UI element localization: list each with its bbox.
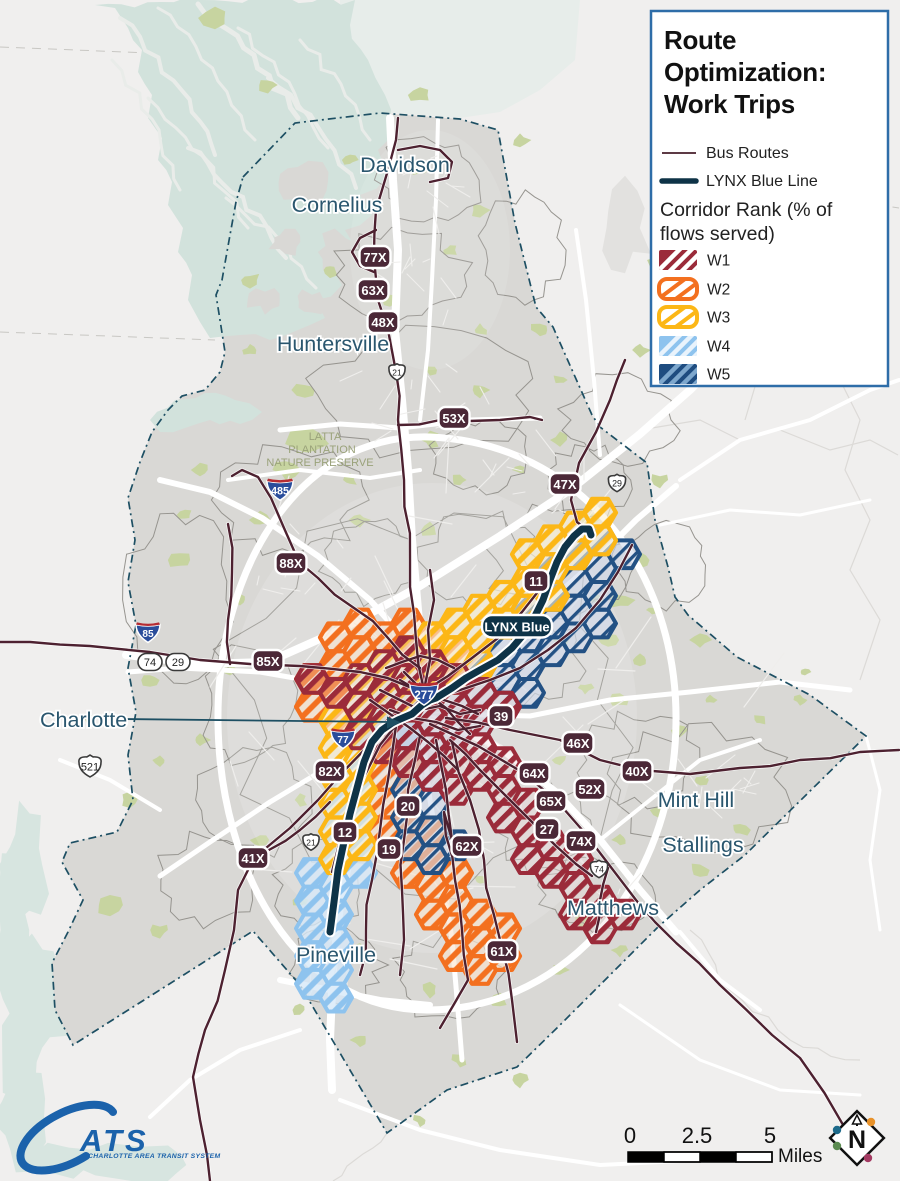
svg-text:62X: 62X <box>455 839 478 854</box>
svg-text:2.5: 2.5 <box>682 1123 713 1148</box>
svg-text:277: 277 <box>414 690 433 702</box>
svg-text:PLANTATION: PLANTATION <box>288 444 355 456</box>
svg-text:85: 85 <box>142 629 154 640</box>
svg-text:Huntersville: Huntersville <box>277 332 389 356</box>
svg-text:W2: W2 <box>707 282 730 299</box>
svg-text:21: 21 <box>392 367 402 377</box>
svg-text:82X: 82X <box>318 764 341 779</box>
svg-text:46X: 46X <box>566 736 589 751</box>
svg-text:20: 20 <box>401 799 415 814</box>
svg-text:53X: 53X <box>442 411 465 426</box>
svg-text:40X: 40X <box>625 764 648 779</box>
svg-text:485: 485 <box>271 485 289 497</box>
svg-text:W1: W1 <box>707 253 730 270</box>
svg-text:Charlotte: Charlotte <box>40 708 127 732</box>
svg-text:88X: 88X <box>279 556 302 571</box>
svg-text:11: 11 <box>529 574 543 589</box>
svg-text:29: 29 <box>612 478 622 488</box>
svg-text:Miles: Miles <box>778 1146 822 1167</box>
svg-text:63X: 63X <box>361 283 384 298</box>
svg-text:74X: 74X <box>569 834 592 849</box>
svg-text:77X: 77X <box>363 250 386 265</box>
svg-text:Matthews: Matthews <box>567 896 659 920</box>
svg-text:N: N <box>848 1126 866 1154</box>
svg-text:85X: 85X <box>256 654 279 669</box>
svg-text:12: 12 <box>338 825 352 840</box>
svg-text:Davidson: Davidson <box>360 153 450 177</box>
svg-text:21: 21 <box>306 837 316 847</box>
svg-text:Cornelius: Cornelius <box>292 193 383 217</box>
svg-text:52X: 52X <box>578 782 601 797</box>
svg-text:Optimization:: Optimization: <box>664 57 826 87</box>
svg-text:LYNX Blue: LYNX Blue <box>484 620 549 635</box>
svg-text:19: 19 <box>382 842 396 857</box>
svg-text:NATURE PRESERVE: NATURE PRESERVE <box>266 457 373 469</box>
svg-text:65X: 65X <box>539 794 562 809</box>
svg-text:47X: 47X <box>553 477 576 492</box>
svg-text:W4: W4 <box>707 339 731 356</box>
svg-text:flows served): flows served) <box>660 223 775 245</box>
svg-text:CHARLOTTE AREA TRANSIT SYSTEM: CHARLOTTE AREA TRANSIT SYSTEM <box>88 1153 220 1160</box>
svg-text:Stallings: Stallings <box>662 833 743 857</box>
svg-text:29: 29 <box>172 657 184 669</box>
svg-text:5: 5 <box>764 1123 776 1148</box>
svg-text:W5: W5 <box>707 367 730 384</box>
svg-text:0: 0 <box>624 1123 636 1148</box>
svg-text:LYNX Blue Line: LYNX Blue Line <box>706 173 818 190</box>
svg-text:39: 39 <box>494 709 508 724</box>
svg-text:Corridor Rank (% of: Corridor Rank (% of <box>660 199 833 221</box>
svg-text:521: 521 <box>81 761 99 773</box>
svg-text:77: 77 <box>337 735 349 746</box>
svg-text:Work Trips: Work Trips <box>664 89 795 119</box>
svg-text:41X: 41X <box>241 851 264 866</box>
svg-text:Pineville: Pineville <box>296 943 376 967</box>
svg-text:LATTA: LATTA <box>309 431 342 443</box>
svg-text:Route: Route <box>664 25 736 55</box>
svg-text:Bus Routes: Bus Routes <box>706 145 789 162</box>
svg-text:W3: W3 <box>707 310 730 327</box>
svg-text:27: 27 <box>540 822 554 837</box>
svg-text:74: 74 <box>144 657 156 669</box>
svg-text:64X: 64X <box>522 766 545 781</box>
svg-text:74: 74 <box>594 864 604 874</box>
svg-text:48X: 48X <box>371 315 394 330</box>
svg-text:Mint Hill: Mint Hill <box>658 788 734 812</box>
svg-text:61X: 61X <box>490 944 513 959</box>
